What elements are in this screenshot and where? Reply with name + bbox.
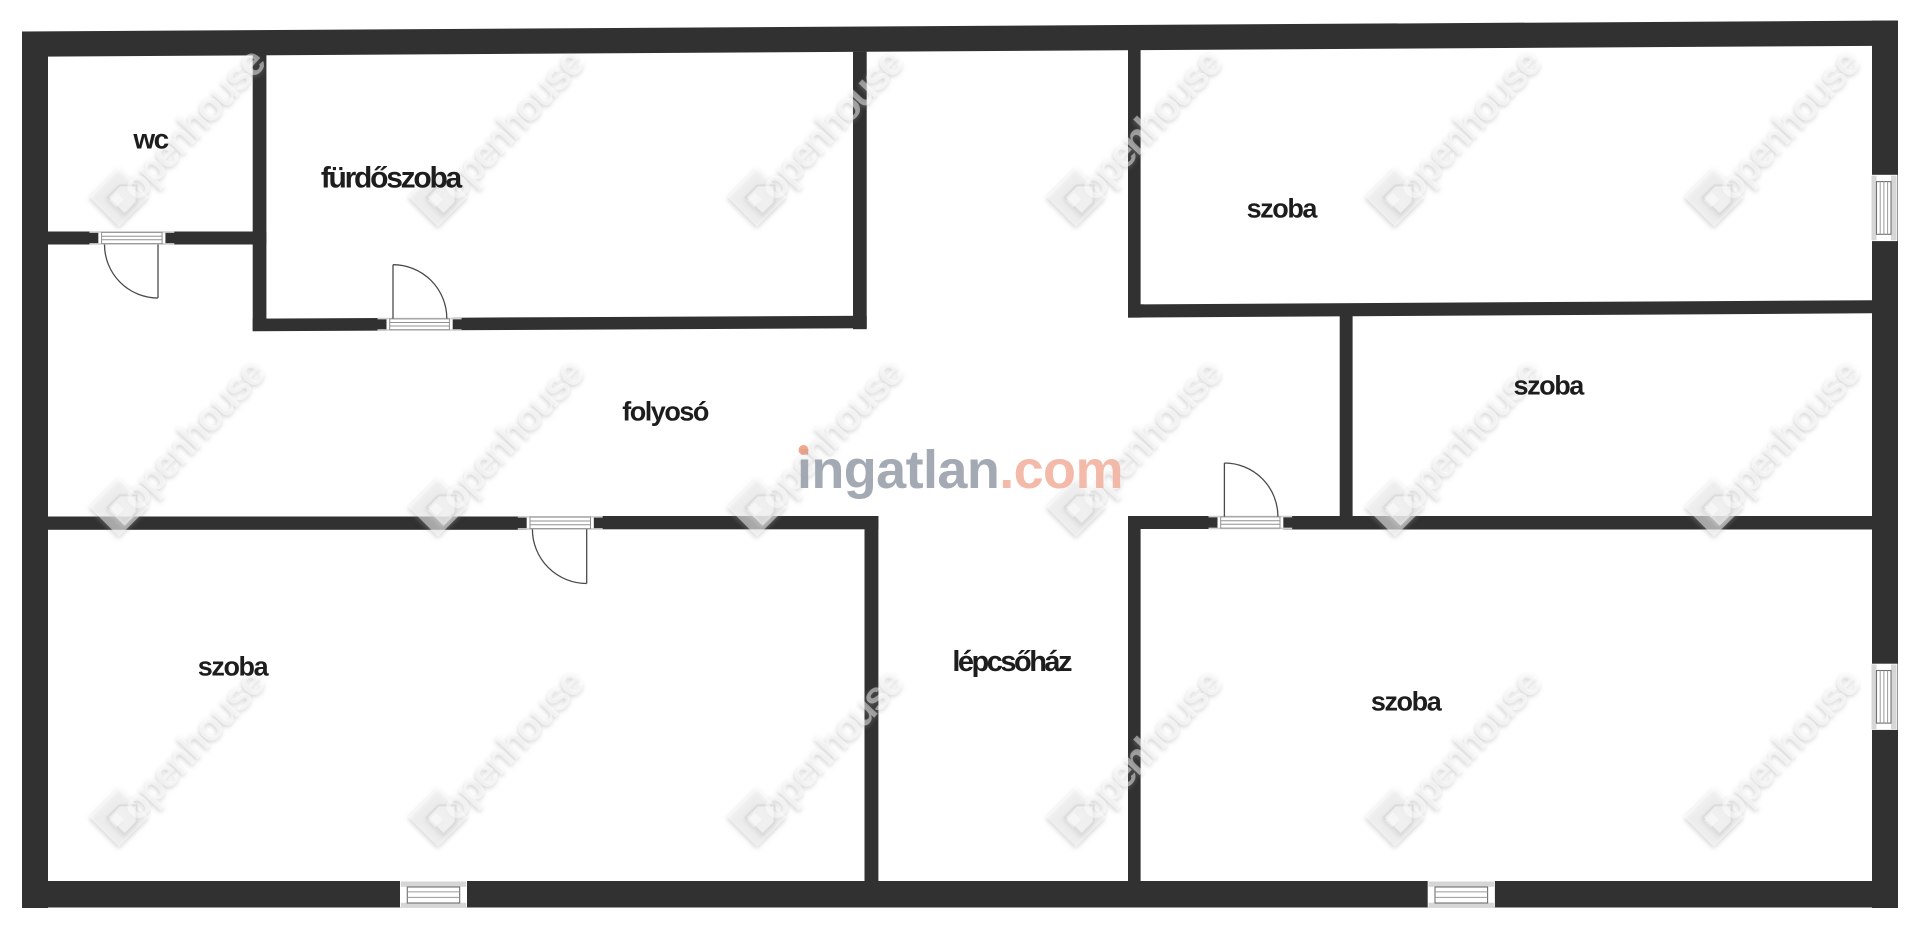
svg-text:szoba: szoba bbox=[1247, 194, 1319, 224]
svg-text:wc: wc bbox=[132, 123, 168, 154]
svg-text:szoba: szoba bbox=[198, 651, 270, 681]
svg-text:szoba: szoba bbox=[1371, 687, 1443, 717]
svg-text:szoba: szoba bbox=[1513, 371, 1585, 401]
svg-text:folyosó: folyosó bbox=[622, 397, 709, 427]
svg-text:fürdőszoba: fürdőszoba bbox=[321, 162, 463, 195]
svg-text:lépcsőház: lépcsőház bbox=[952, 646, 1072, 678]
svg-text:ingatlan.com: ingatlan.com bbox=[797, 440, 1123, 500]
